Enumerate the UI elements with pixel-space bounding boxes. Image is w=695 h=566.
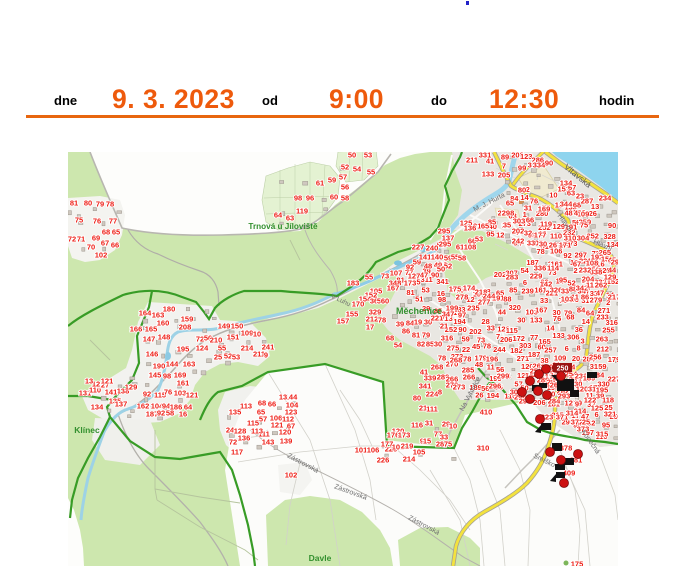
svg-text:72: 72 (68, 235, 76, 244)
svg-text:79: 79 (422, 331, 430, 340)
svg-text:175: 175 (449, 285, 462, 294)
svg-text:320: 320 (508, 303, 521, 312)
svg-text:211: 211 (466, 156, 478, 165)
svg-text:55: 55 (367, 168, 375, 177)
svg-text:54: 54 (394, 341, 403, 350)
svg-text:250: 250 (557, 366, 569, 373)
svg-text:57: 57 (259, 415, 267, 424)
svg-text:33: 33 (540, 296, 548, 305)
svg-text:48: 48 (564, 209, 572, 218)
svg-text:109: 109 (577, 210, 590, 219)
svg-text:90: 90 (608, 221, 616, 230)
svg-text:105: 105 (413, 448, 426, 457)
svg-text:30: 30 (539, 240, 547, 249)
svg-text:48: 48 (424, 262, 432, 271)
svg-text:164: 164 (139, 309, 152, 318)
svg-text:293: 293 (558, 392, 571, 401)
svg-text:90: 90 (545, 159, 553, 168)
svg-text:59: 59 (462, 334, 470, 343)
svg-text:78: 78 (378, 316, 386, 325)
svg-text:47: 47 (596, 289, 604, 298)
svg-text:195: 195 (177, 345, 190, 354)
svg-text:19: 19 (414, 318, 422, 327)
svg-text:76: 76 (164, 388, 172, 397)
svg-text:170: 170 (352, 300, 365, 309)
svg-text:160: 160 (157, 319, 170, 328)
svg-text:9: 9 (264, 351, 268, 360)
svg-text:30: 30 (517, 316, 525, 325)
svg-text:84: 84 (577, 305, 586, 314)
svg-text:133: 133 (552, 331, 565, 340)
svg-text:124: 124 (196, 344, 209, 353)
svg-text:71: 71 (77, 235, 85, 244)
svg-text:295: 295 (438, 227, 451, 236)
svg-text:102: 102 (95, 251, 108, 260)
svg-text:177: 177 (534, 231, 547, 240)
svg-text:67: 67 (101, 239, 109, 248)
svg-text:95: 95 (559, 276, 567, 285)
svg-text:133: 133 (482, 170, 495, 179)
svg-text:92: 92 (157, 409, 165, 418)
svg-text:143: 143 (262, 438, 275, 447)
svg-text:166: 166 (130, 325, 143, 334)
svg-text:63: 63 (567, 189, 575, 198)
svg-text:54: 54 (353, 165, 362, 174)
svg-text:299: 299 (497, 372, 510, 381)
svg-text:338: 338 (590, 268, 603, 277)
svg-text:77: 77 (109, 217, 117, 226)
svg-text:167: 167 (387, 284, 400, 293)
svg-text:58: 58 (166, 409, 174, 418)
svg-text:219: 219 (401, 442, 414, 451)
svg-text:206: 206 (500, 335, 513, 344)
svg-text:144: 144 (166, 360, 179, 369)
svg-text:8: 8 (438, 388, 442, 397)
svg-text:58: 58 (341, 194, 349, 203)
svg-text:240: 240 (426, 244, 439, 253)
svg-text:23: 23 (576, 192, 584, 201)
svg-text:92: 92 (406, 263, 414, 272)
svg-text:75: 75 (444, 440, 452, 449)
svg-text:336: 336 (534, 264, 547, 273)
svg-text:31: 31 (425, 419, 433, 428)
svg-text:303: 303 (519, 341, 532, 350)
svg-text:121: 121 (101, 377, 114, 386)
svg-text:256: 256 (589, 352, 602, 361)
svg-text:275: 275 (447, 344, 460, 353)
svg-text:81: 81 (70, 199, 78, 208)
svg-text:226: 226 (377, 456, 390, 465)
svg-text:136: 136 (464, 224, 477, 233)
svg-text:167: 167 (535, 305, 548, 314)
svg-text:75: 75 (75, 216, 83, 225)
svg-text:139: 139 (280, 437, 293, 446)
svg-text:268: 268 (431, 363, 444, 372)
svg-text:80: 80 (84, 199, 92, 208)
svg-text:76: 76 (93, 217, 101, 226)
svg-text:14: 14 (582, 317, 591, 326)
svg-text:119: 119 (540, 220, 552, 229)
svg-text:195: 195 (596, 386, 609, 395)
svg-text:80: 80 (518, 186, 526, 195)
svg-text:61: 61 (316, 179, 324, 188)
svg-text:51: 51 (415, 295, 423, 304)
svg-text:Měchenice: Měchenice (396, 306, 442, 316)
svg-text:173: 173 (398, 431, 411, 440)
svg-text:116: 116 (411, 421, 423, 430)
svg-text:113: 113 (240, 402, 252, 411)
svg-text:64: 64 (274, 211, 283, 220)
svg-text:129: 129 (125, 383, 138, 392)
svg-text:3: 3 (581, 336, 585, 345)
svg-text:241: 241 (262, 343, 275, 352)
svg-text:85: 85 (509, 285, 517, 294)
svg-text:59: 59 (328, 176, 336, 185)
svg-text:66: 66 (268, 400, 276, 409)
svg-text:118: 118 (602, 396, 614, 405)
svg-text:11: 11 (487, 363, 495, 372)
svg-text:6: 6 (565, 344, 569, 353)
svg-text:78: 78 (463, 354, 471, 363)
svg-text:303: 303 (513, 217, 526, 226)
svg-text:347: 347 (442, 310, 455, 319)
svg-text:35: 35 (503, 221, 511, 230)
svg-text:148: 148 (158, 333, 171, 342)
svg-text:25: 25 (214, 353, 222, 362)
svg-text:273: 273 (453, 383, 466, 392)
svg-text:80: 80 (413, 394, 421, 403)
svg-text:32: 32 (524, 229, 532, 238)
svg-text:278: 278 (456, 293, 469, 302)
svg-text:119: 119 (296, 207, 308, 216)
svg-text:103: 103 (561, 295, 574, 304)
svg-text:113: 113 (251, 427, 263, 436)
svg-text:244: 244 (483, 292, 496, 301)
svg-text:86: 86 (402, 327, 410, 336)
svg-text:296: 296 (489, 382, 502, 391)
svg-text:98: 98 (294, 194, 302, 203)
svg-text:129: 129 (604, 273, 617, 282)
svg-text:44: 44 (498, 307, 507, 316)
svg-text:344: 344 (560, 200, 573, 209)
svg-text:31: 31 (524, 204, 532, 213)
svg-text:86: 86 (581, 293, 589, 302)
svg-text:109: 109 (241, 329, 254, 338)
svg-text:145: 145 (149, 371, 162, 380)
svg-text:Trnová u Jíloviště: Trnová u Jíloviště (248, 222, 318, 231)
svg-text:41: 41 (486, 157, 494, 166)
svg-text:114: 114 (547, 264, 560, 273)
svg-text:310: 310 (477, 444, 490, 453)
svg-text:7: 7 (502, 162, 506, 171)
svg-text:8: 8 (577, 344, 581, 353)
svg-text:53: 53 (364, 151, 372, 160)
svg-text:97: 97 (458, 311, 466, 320)
svg-text:10: 10 (549, 190, 557, 199)
svg-text:90: 90 (458, 325, 466, 334)
svg-text:33: 33 (527, 239, 535, 248)
svg-text:175: 175 (571, 560, 584, 566)
svg-text:78: 78 (483, 342, 491, 351)
svg-text:268: 268 (450, 356, 463, 365)
svg-text:45: 45 (472, 342, 480, 351)
svg-text:111: 111 (426, 405, 438, 414)
svg-text:173: 173 (404, 279, 417, 288)
svg-text:244: 244 (493, 345, 506, 354)
svg-text:314: 314 (566, 409, 579, 418)
svg-text:146: 146 (146, 350, 159, 359)
svg-text:69: 69 (92, 234, 100, 243)
svg-text:54: 54 (521, 266, 530, 275)
svg-text:235: 235 (467, 303, 480, 312)
svg-text:125: 125 (591, 404, 604, 413)
svg-text:15: 15 (423, 437, 431, 446)
svg-text:255: 255 (602, 325, 615, 334)
svg-text:283: 283 (506, 273, 519, 282)
svg-text:68: 68 (102, 228, 110, 237)
svg-text:58: 58 (458, 254, 466, 263)
svg-text:53: 53 (422, 286, 430, 295)
svg-text:95: 95 (486, 230, 494, 239)
svg-text:21: 21 (440, 322, 448, 331)
svg-text:12: 12 (496, 231, 504, 240)
svg-text:134: 134 (91, 403, 104, 412)
svg-text:10: 10 (449, 422, 457, 431)
svg-text:65: 65 (112, 228, 120, 237)
svg-text:26: 26 (475, 390, 483, 399)
svg-text:102: 102 (285, 471, 298, 480)
svg-text:306: 306 (567, 333, 580, 342)
svg-text:180: 180 (163, 305, 176, 314)
svg-text:72: 72 (229, 438, 237, 447)
svg-text:101: 101 (355, 446, 368, 455)
svg-text:147: 147 (143, 335, 156, 344)
svg-text:117: 117 (231, 448, 243, 457)
svg-text:190: 190 (153, 362, 166, 371)
svg-text:217: 217 (608, 293, 621, 302)
svg-text:82: 82 (417, 340, 425, 349)
svg-text:47: 47 (420, 271, 428, 280)
svg-text:13: 13 (85, 377, 93, 386)
svg-text:60: 60 (381, 297, 389, 306)
svg-text:206: 206 (533, 398, 546, 407)
svg-text:161: 161 (177, 379, 190, 388)
svg-text:169: 169 (538, 205, 551, 214)
svg-text:121: 121 (186, 391, 199, 400)
svg-text:79: 79 (96, 200, 104, 209)
svg-text:17: 17 (366, 323, 374, 332)
svg-text:208: 208 (179, 323, 192, 332)
svg-text:16: 16 (179, 410, 187, 419)
svg-text:316: 316 (441, 334, 454, 343)
svg-text:33: 33 (487, 324, 495, 333)
svg-text:341: 341 (436, 277, 449, 286)
svg-text:136: 136 (238, 434, 251, 443)
svg-text:48: 48 (475, 360, 483, 369)
svg-text:66: 66 (111, 241, 119, 250)
svg-text:41: 41 (420, 368, 428, 377)
svg-text:67: 67 (573, 260, 581, 269)
svg-text:137: 137 (115, 400, 128, 409)
svg-text:202: 202 (512, 227, 525, 236)
svg-text:163: 163 (183, 360, 196, 369)
svg-text:194: 194 (487, 391, 500, 400)
svg-text:134: 134 (560, 179, 573, 188)
svg-text:10: 10 (253, 330, 261, 339)
svg-text:304: 304 (577, 234, 590, 243)
svg-text:50: 50 (348, 151, 356, 160)
svg-text:103: 103 (174, 389, 187, 398)
svg-text:96: 96 (306, 194, 314, 203)
svg-text:107: 107 (390, 269, 403, 278)
svg-text:75: 75 (580, 221, 588, 230)
svg-text:81: 81 (412, 331, 420, 340)
svg-text:53: 53 (232, 353, 240, 362)
svg-text:151: 151 (227, 333, 240, 342)
svg-text:67: 67 (287, 422, 295, 431)
svg-text:95: 95 (602, 420, 610, 429)
svg-text:65: 65 (481, 222, 489, 231)
svg-text:66: 66 (526, 216, 534, 225)
svg-text:92: 92 (143, 390, 151, 399)
svg-text:98: 98 (163, 372, 171, 381)
svg-text:68: 68 (258, 399, 266, 408)
svg-text:234: 234 (599, 194, 612, 203)
svg-text:179: 179 (608, 355, 621, 364)
svg-text:52: 52 (341, 163, 349, 172)
svg-text:55: 55 (365, 273, 373, 282)
svg-text:65: 65 (506, 198, 514, 207)
svg-text:149: 149 (218, 322, 231, 331)
svg-text:110: 110 (550, 232, 562, 241)
svg-text:89: 89 (501, 153, 509, 162)
svg-text:78: 78 (438, 354, 446, 363)
svg-text:133: 133 (530, 316, 543, 325)
svg-text:239: 239 (521, 287, 534, 296)
svg-text:263: 263 (596, 335, 609, 344)
svg-text:57: 57 (339, 173, 347, 182)
svg-text:157: 157 (337, 317, 350, 326)
svg-text:56: 56 (341, 183, 349, 192)
svg-text:227: 227 (412, 243, 425, 252)
svg-text:60: 60 (330, 193, 338, 202)
svg-text:242: 242 (512, 237, 525, 246)
svg-text:76: 76 (553, 314, 561, 323)
svg-text:205: 205 (498, 171, 511, 180)
svg-text:141: 141 (419, 253, 432, 262)
svg-text:68: 68 (566, 312, 574, 321)
svg-text:187: 187 (528, 350, 541, 359)
svg-text:108: 108 (464, 243, 477, 252)
svg-text:285: 285 (462, 366, 475, 375)
svg-text:106: 106 (367, 446, 380, 455)
svg-text:81: 81 (406, 288, 414, 297)
svg-text:315: 315 (596, 430, 609, 439)
svg-text:183: 183 (347, 279, 360, 288)
svg-text:Klínec: Klínec (74, 425, 100, 435)
svg-text:99: 99 (518, 163, 526, 172)
svg-text:321: 321 (604, 410, 617, 419)
svg-text:Davle: Davle (309, 553, 332, 563)
svg-text:165: 165 (145, 325, 158, 334)
svg-text:78: 78 (106, 200, 114, 209)
svg-text:310: 310 (564, 234, 577, 243)
svg-text:50: 50 (437, 265, 445, 274)
svg-text:410: 410 (480, 408, 493, 417)
